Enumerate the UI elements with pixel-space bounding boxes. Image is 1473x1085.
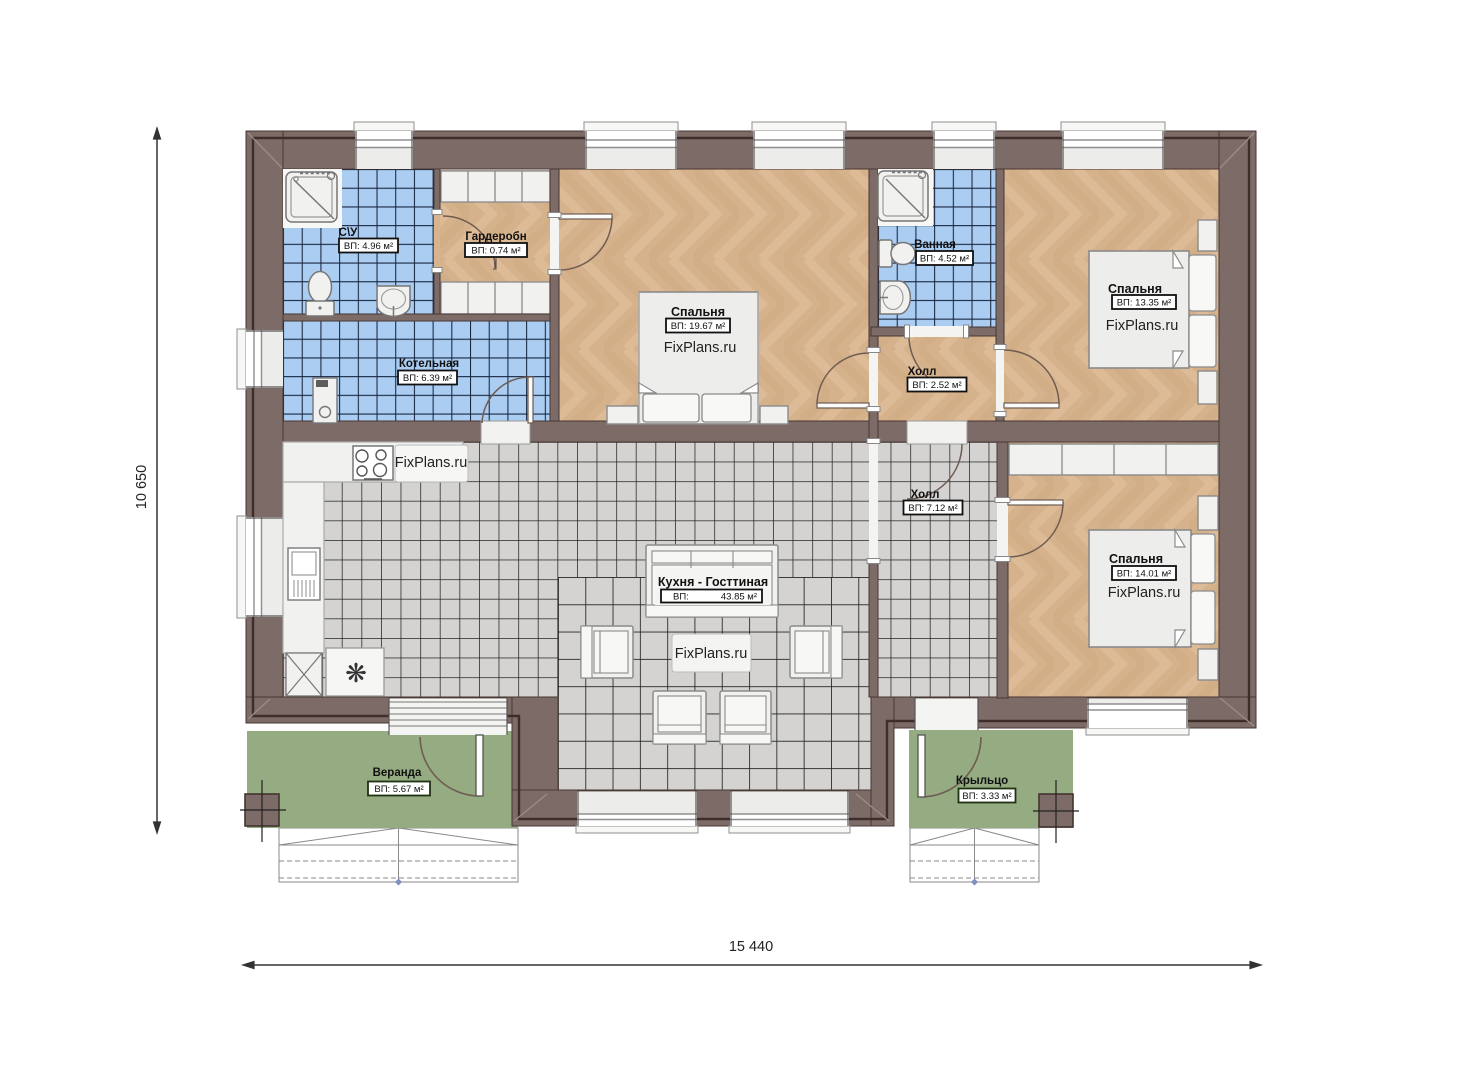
svg-text:С\У: С\У (339, 227, 359, 239)
svg-text:Спальня: Спальня (1109, 552, 1163, 566)
svg-text:FixPlans.ru: FixPlans.ru (1108, 585, 1181, 601)
svg-text:Холл: Холл (908, 366, 937, 378)
svg-text:Котельная: Котельная (399, 358, 459, 370)
svg-text:ВП: 0.74 м²: ВП: 0.74 м² (471, 246, 520, 257)
svg-text:ВП: 4.52 м²: ВП: 4.52 м² (920, 254, 969, 265)
svg-text:Спальня: Спальня (671, 305, 725, 319)
svg-text:Спальня: Спальня (1108, 282, 1162, 296)
svg-text:ВП: 7.12 м²: ВП: 7.12 м² (908, 503, 957, 514)
svg-text:❋: ❋ (345, 658, 367, 688)
svg-text:ВП: 5.67 м²: ВП: 5.67 м² (374, 784, 423, 795)
svg-text:ВП: 2.52 м²: ВП: 2.52 м² (912, 380, 961, 391)
svg-text:Холл: Холл (911, 489, 940, 501)
svg-text:ВП: 3.33 м²: ВП: 3.33 м² (962, 791, 1011, 802)
svg-text:15 440: 15 440 (729, 939, 773, 955)
svg-text:FixPlans.ru: FixPlans.ru (664, 340, 737, 356)
svg-text:ВП: 4.96 м²: ВП: 4.96 м² (344, 241, 393, 252)
svg-text:43.85 м²: 43.85 м² (721, 592, 757, 603)
svg-text:ВП: 13.35 м²: ВП: 13.35 м² (1117, 298, 1172, 309)
svg-text:FixPlans.ru: FixPlans.ru (1106, 318, 1179, 334)
svg-text:Ванная: Ванная (914, 239, 956, 251)
svg-text:10 650: 10 650 (134, 465, 150, 509)
svg-text:Крыльцо: Крыльцо (956, 775, 1008, 787)
svg-text:ВП: 19.67 м²: ВП: 19.67 м² (671, 321, 726, 332)
svg-text:ВП:: ВП: (673, 592, 689, 603)
svg-text:Гардеробн: Гардеробн (465, 231, 526, 243)
svg-text:ВП: 14.01 м²: ВП: 14.01 м² (1117, 569, 1172, 580)
svg-text:FixPlans.ru: FixPlans.ru (395, 455, 468, 471)
svg-text:ВП: 6.39 м²: ВП: 6.39 м² (403, 373, 452, 384)
svg-text:FixPlans.ru: FixPlans.ru (675, 646, 748, 662)
svg-text:Кухня - Госттиная: Кухня - Госттиная (658, 575, 768, 589)
svg-text:Веранда: Веранда (373, 767, 422, 779)
